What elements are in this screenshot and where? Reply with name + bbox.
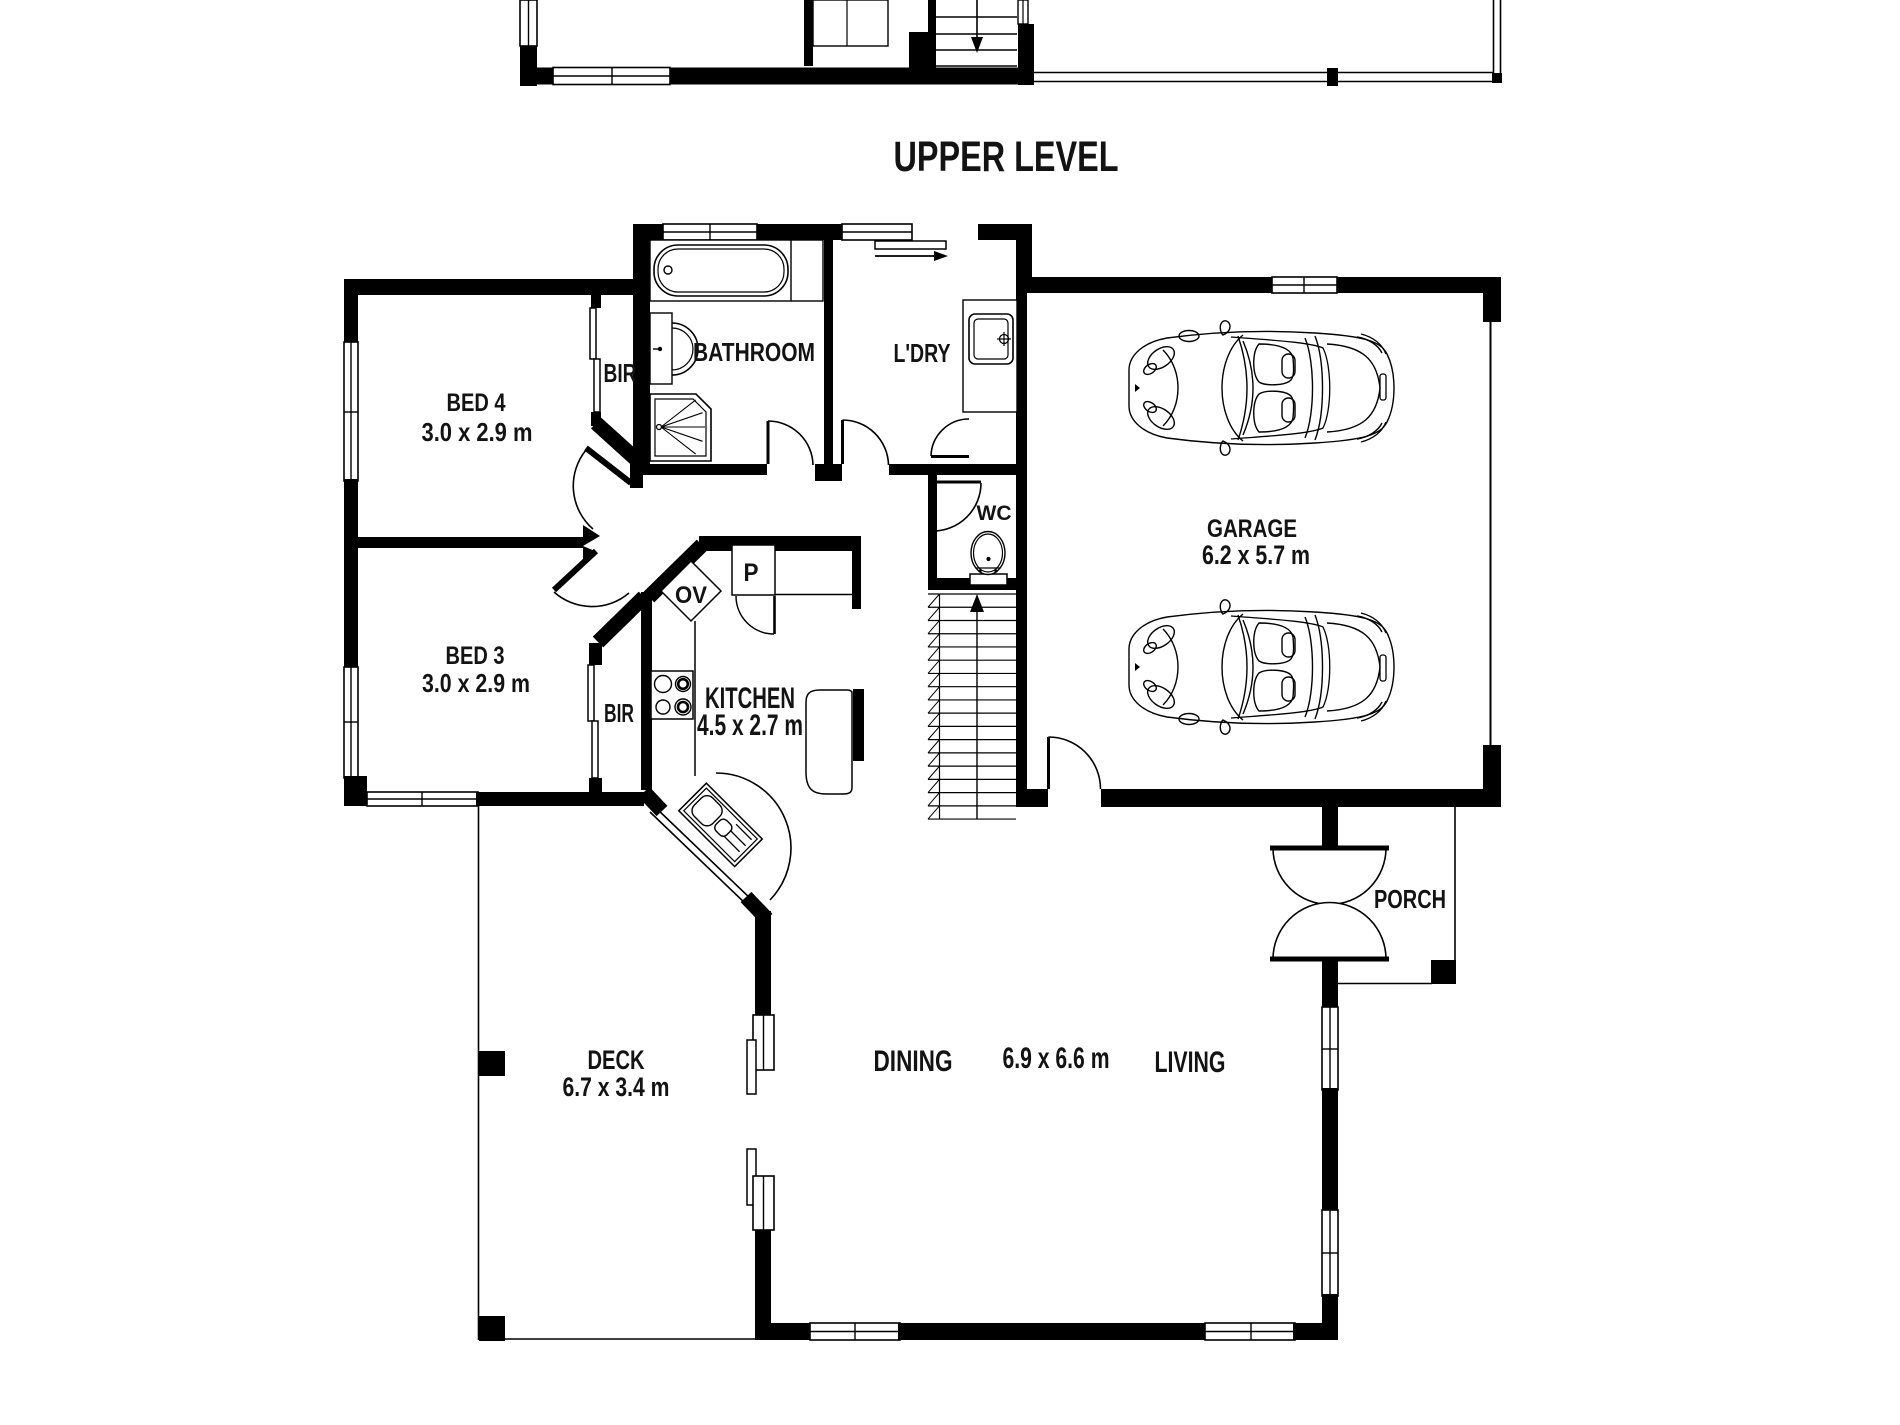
svg-text:UPPER LEVEL: UPPER LEVEL	[894, 133, 1119, 181]
svg-text:L'DRY: L'DRY	[894, 338, 951, 368]
svg-text:DECK: DECK	[588, 1045, 645, 1075]
svg-text:WC: WC	[977, 502, 1012, 525]
svg-text:6.2 x 5.7 m: 6.2 x 5.7 m	[1202, 540, 1310, 570]
svg-text:BIR: BIR	[604, 698, 634, 728]
svg-text:BED 3: BED 3	[446, 642, 505, 670]
svg-text:6.7 x 3.4 m: 6.7 x 3.4 m	[563, 1072, 670, 1102]
svg-text:6.9 x 6.6 m: 6.9 x 6.6 m	[1003, 1042, 1110, 1075]
svg-text:3.0 x 2.9 m: 3.0 x 2.9 m	[422, 417, 533, 447]
svg-text:BIR: BIR	[604, 358, 637, 388]
svg-text:BED 4: BED 4	[447, 389, 506, 417]
svg-text:LIVING: LIVING	[1155, 1046, 1226, 1079]
svg-text:4.5 x 2.7 m: 4.5 x 2.7 m	[697, 709, 803, 742]
svg-text:OV: OV	[675, 582, 707, 609]
svg-text:P: P	[744, 559, 759, 587]
svg-text:DINING: DINING	[874, 1045, 953, 1078]
svg-text:3.0 x 2.9 m: 3.0 x 2.9 m	[422, 668, 530, 698]
svg-text:BATHROOM: BATHROOM	[693, 337, 815, 367]
svg-text:GARAGE: GARAGE	[1207, 515, 1297, 543]
svg-text:PORCH: PORCH	[1374, 884, 1446, 914]
